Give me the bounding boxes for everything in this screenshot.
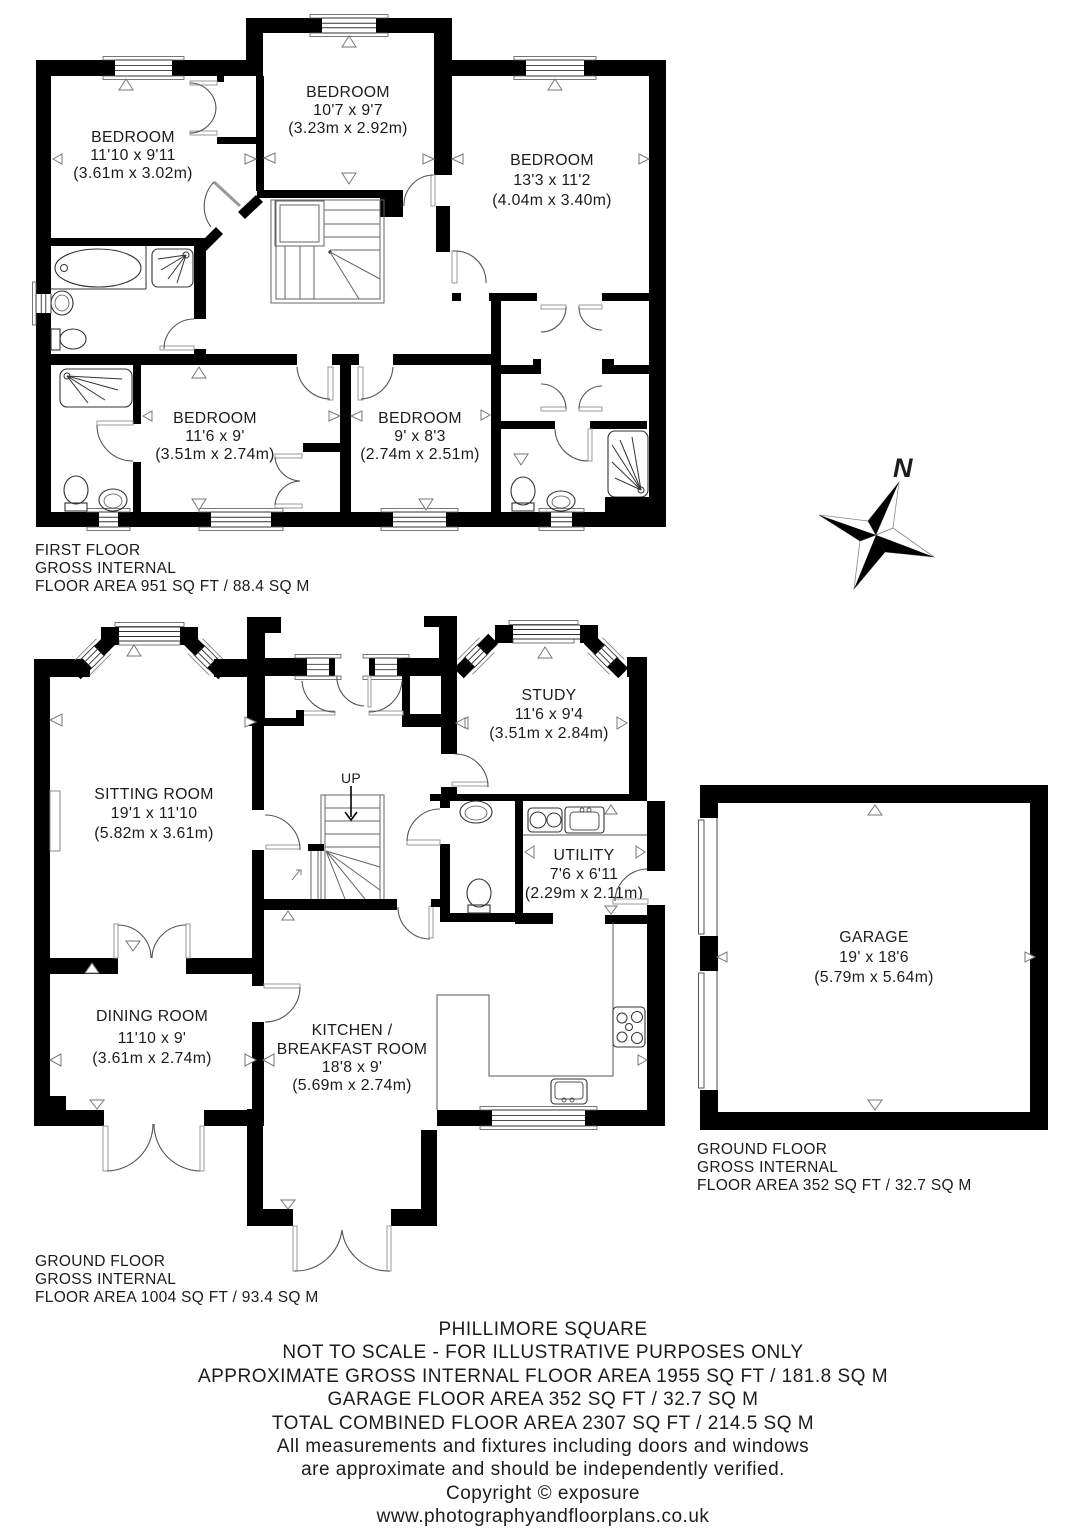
svg-text:Copyright © exposure: Copyright © exposure — [446, 1483, 640, 1504]
svg-text:UP: UP — [341, 770, 361, 786]
svg-text:SITTING ROOM: SITTING ROOM — [94, 786, 213, 803]
svg-text:APPROXIMATE GROSS INTERNAL FLO: APPROXIMATE GROSS INTERNAL FLOOR AREA 19… — [198, 1366, 888, 1387]
svg-text:BEDROOM: BEDROOM — [173, 410, 257, 427]
svg-text:(2.74m x 2.51m): (2.74m x 2.51m) — [360, 446, 480, 463]
svg-text:7'6 x 6'11: 7'6 x 6'11 — [550, 866, 618, 883]
svg-text:BEDROOM: BEDROOM — [91, 129, 175, 146]
svg-text:are approximate and should be: are approximate and should be independen… — [301, 1459, 785, 1480]
svg-text:FLOOR AREA 352 SQ FT / 32.7 SQ: FLOOR AREA 352 SQ FT / 32.7 SQ M — [697, 1177, 972, 1194]
svg-text:BEDROOM: BEDROOM — [306, 84, 390, 101]
svg-text:GARAGE: GARAGE — [839, 929, 908, 946]
svg-text:18'8 x 9': 18'8 x 9' — [322, 1059, 383, 1076]
svg-text:11'6 x 9'4: 11'6 x 9'4 — [515, 706, 583, 723]
svg-text:19' x 18'6: 19' x 18'6 — [839, 949, 909, 966]
svg-text:10'7 x 9'7: 10'7 x 9'7 — [313, 102, 383, 119]
svg-text:13'3 x 11'2: 13'3 x 11'2 — [513, 172, 591, 189]
svg-text:FLOOR AREA 951 SQ FT / 88.4 SQ: FLOOR AREA 951 SQ FT / 88.4 SQ M — [35, 578, 310, 595]
svg-text:19'1 x 11'10: 19'1 x 11'10 — [111, 805, 198, 822]
svg-text:BEDROOM: BEDROOM — [510, 152, 594, 169]
svg-text:N: N — [893, 453, 913, 483]
svg-text:(5.69m x 2.74m): (5.69m x 2.74m) — [292, 1077, 412, 1094]
svg-text:GROSS INTERNAL: GROSS INTERNAL — [35, 1271, 176, 1288]
svg-text:(3.61m x 2.74m): (3.61m x 2.74m) — [92, 1050, 212, 1067]
svg-text:DINING ROOM: DINING ROOM — [96, 1008, 208, 1025]
svg-text:GROSS INTERNAL: GROSS INTERNAL — [697, 1159, 838, 1176]
svg-text:(3.23m x 2.92m): (3.23m x 2.92m) — [288, 120, 408, 137]
svg-text:(3.51m x 2.84m): (3.51m x 2.84m) — [489, 725, 609, 742]
svg-text:FLOOR AREA 1004 SQ FT / 93.4 S: FLOOR AREA 1004 SQ FT / 93.4 SQ M — [35, 1289, 319, 1306]
svg-text:9' x 8'3: 9' x 8'3 — [394, 428, 445, 445]
svg-text:GROSS INTERNAL: GROSS INTERNAL — [35, 560, 176, 577]
svg-text:GROUND FLOOR: GROUND FLOOR — [697, 1141, 827, 1158]
svg-text:(5.79m x 5.64m): (5.79m x 5.64m) — [814, 969, 934, 986]
svg-text:NOT TO SCALE - FOR ILLUSTRATIV: NOT TO SCALE - FOR ILLUSTRATIVE PURPOSES… — [282, 1342, 803, 1363]
svg-text:STUDY: STUDY — [521, 687, 576, 704]
svg-text:GROUND FLOOR: GROUND FLOOR — [35, 1253, 165, 1270]
svg-text:11'6 x 9': 11'6 x 9' — [185, 428, 244, 445]
svg-text:PHILLIMORE SQUARE: PHILLIMORE SQUARE — [438, 1319, 647, 1340]
svg-text:FIRST FLOOR: FIRST FLOOR — [35, 542, 141, 559]
svg-text:www.photographyandfloorplans.c: www.photographyandfloorplans.co.uk — [376, 1506, 710, 1527]
svg-text:11'10 x 9'11: 11'10 x 9'11 — [90, 147, 175, 164]
svg-text:(5.82m x 3.61m): (5.82m x 3.61m) — [94, 825, 214, 842]
svg-text:BEDROOM: BEDROOM — [378, 410, 462, 427]
svg-text:KITCHEN /: KITCHEN / — [312, 1022, 393, 1039]
svg-text:BREAKFAST ROOM: BREAKFAST ROOM — [277, 1041, 428, 1058]
svg-text:All measurements and fixtures: All measurements and fixtures including … — [277, 1436, 809, 1457]
svg-text:UTILITY: UTILITY — [554, 847, 615, 864]
svg-text:11'10 x 9': 11'10 x 9' — [118, 1030, 186, 1047]
svg-text:GARAGE FLOOR AREA 352 SQ FT /: GARAGE FLOOR AREA 352 SQ FT / 32.7 SQ M — [328, 1389, 759, 1410]
svg-text:(4.04m x 3.40m): (4.04m x 3.40m) — [492, 192, 612, 209]
svg-text:(3.61m x 3.02m): (3.61m x 3.02m) — [73, 165, 193, 182]
svg-text:TOTAL COMBINED FLOOR AREA 2307: TOTAL COMBINED FLOOR AREA 2307 SQ FT / 2… — [272, 1413, 814, 1434]
svg-text:(3.51m x 2.74m): (3.51m x 2.74m) — [155, 446, 275, 463]
